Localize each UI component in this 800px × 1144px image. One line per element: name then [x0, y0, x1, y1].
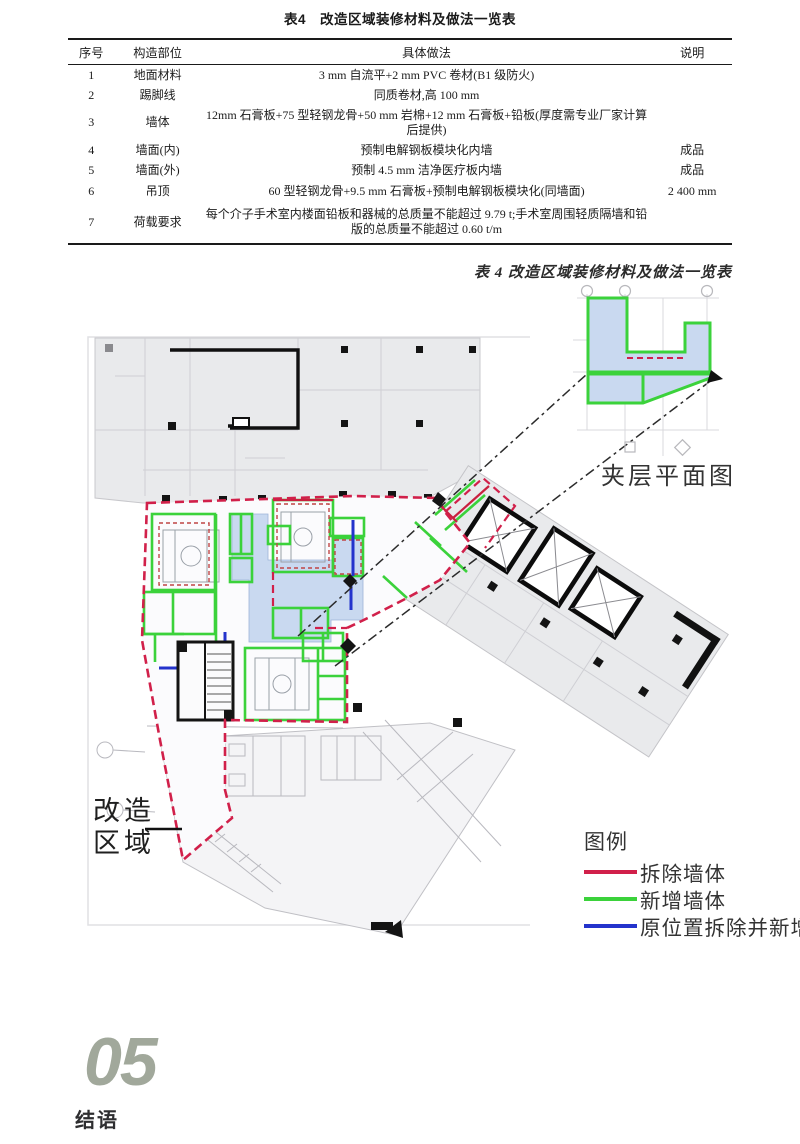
materials-table-section: 表4 改造区域装修材料及做法一览表 序号 构造部位 具体做法 说明 1 地面材料… [68, 0, 732, 282]
replace-wall-swatch [584, 924, 637, 928]
table-row: 7 荷载要求 每个介子手术室内楼面铅板和器械的总质量不能超过 9.79 t;手术… [68, 201, 732, 244]
renovation-area-label: 改造 区域 [93, 795, 155, 860]
table-row: 2 踢脚线 同质卷材,高 100 mm [68, 85, 732, 105]
legend-title: 图例 [584, 826, 800, 856]
cell-part: 吊顶 [114, 181, 200, 201]
cell-no: 5 [68, 161, 114, 181]
document-page: 表4 改造区域装修材料及做法一览表 序号 构造部位 具体做法 说明 1 地面材料… [0, 0, 800, 1144]
col-header-method: 具体做法 [201, 39, 653, 65]
cell-no: 1 [68, 65, 114, 86]
cell-part: 墙体 [114, 105, 200, 140]
table-row: 1 地面材料 3 mm 自流平+2 mm PVC 卷材(B1 级防火) [68, 65, 732, 86]
legend-label: 原位置拆除并新增 [640, 911, 800, 941]
cell-no: 4 [68, 141, 114, 161]
mezzanine-plan [573, 286, 723, 457]
table-row: 4 墙面(内) 预制电解钢板模块化内墙 成品 [68, 141, 732, 161]
table-row: 5 墙面(外) 预制 4.5 mm 洁净医疗板内墙 成品 [68, 161, 732, 181]
cell-note [652, 201, 732, 244]
cell-method: 每个介子手术室内楼面铅板和器械的总质量不能超过 9.79 t;手术室周围轻质隔墙… [201, 201, 653, 244]
mezzanine-label: 夹层平面图 [601, 456, 736, 491]
cell-note: 成品 [652, 141, 732, 161]
table-caption: 表 4 改造区域装修材料及做法一览表 [68, 261, 732, 282]
stair-block [178, 642, 233, 720]
cell-no: 7 [68, 201, 114, 244]
legend-item-new: 新增墙体 [584, 885, 800, 912]
legend-item-demolish: 拆除墙体 [584, 858, 800, 885]
cell-method: 预制电解钢板模块化内墙 [201, 141, 653, 161]
mezzanine-rooms [588, 298, 713, 403]
table-row: 3 墙体 12mm 石膏板+75 型轻钢龙骨+50 mm 岩棉+12 mm 石膏… [68, 105, 732, 140]
cell-no: 3 [68, 105, 114, 140]
cell-method: 预制 4.5 mm 洁净医疗板内墙 [201, 161, 653, 181]
cell-note [652, 85, 732, 105]
cell-method: 12mm 石膏板+75 型轻钢龙骨+50 mm 岩棉+12 mm 石膏板+铅板(… [201, 105, 653, 140]
legend-item-replace: 原位置拆除并新增 [584, 912, 800, 939]
cell-part: 地面材料 [114, 65, 200, 86]
cell-no: 2 [68, 85, 114, 105]
cell-part: 踢脚线 [114, 85, 200, 105]
cell-note: 成品 [652, 161, 732, 181]
col-header-note: 说明 [652, 39, 732, 65]
cell-no: 6 [68, 181, 114, 201]
cell-note [652, 65, 732, 86]
cell-method: 同质卷材,高 100 mm [201, 85, 653, 105]
cell-method: 60 型轻钢龙骨+9.5 mm 石膏板+预制电解钢板模块化(同墙面) [201, 181, 653, 201]
col-header-part: 构造部位 [114, 39, 200, 65]
floor-plan-figure: 夹层平面图 改造 区域 图例 拆除墙体 新增墙体 原位置拆除并新增 图 7 改造… [85, 280, 785, 990]
cell-note: 2 400 mm [652, 181, 732, 201]
section-heading: 结语 [75, 1104, 119, 1133]
cell-note [652, 105, 732, 140]
materials-table: 序号 构造部位 具体做法 说明 1 地面材料 3 mm 自流平+2 mm PVC… [68, 38, 732, 245]
cell-part: 荷载要求 [114, 201, 200, 244]
legend-label: 拆除墙体 [640, 857, 726, 887]
legend: 图例 拆除墙体 新增墙体 原位置拆除并新增 [584, 826, 800, 939]
cell-part: 墙面(内) [114, 141, 200, 161]
legend-label: 新增墙体 [640, 884, 726, 914]
section-number: 05 [84, 1028, 156, 1096]
table-title: 表4 改造区域装修材料及做法一览表 [68, 0, 732, 38]
cell-method: 3 mm 自流平+2 mm PVC 卷材(B1 级防火) [201, 65, 653, 86]
table-row: 6 吊顶 60 型轻钢龙骨+9.5 mm 石膏板+预制电解钢板模块化(同墙面) … [68, 181, 732, 201]
cell-part: 墙面(外) [114, 161, 200, 181]
new-wall-swatch [584, 897, 637, 901]
demolish-wall-swatch [584, 870, 637, 874]
table-header-row: 序号 构造部位 具体做法 说明 [68, 39, 732, 65]
col-header-no: 序号 [68, 39, 114, 65]
